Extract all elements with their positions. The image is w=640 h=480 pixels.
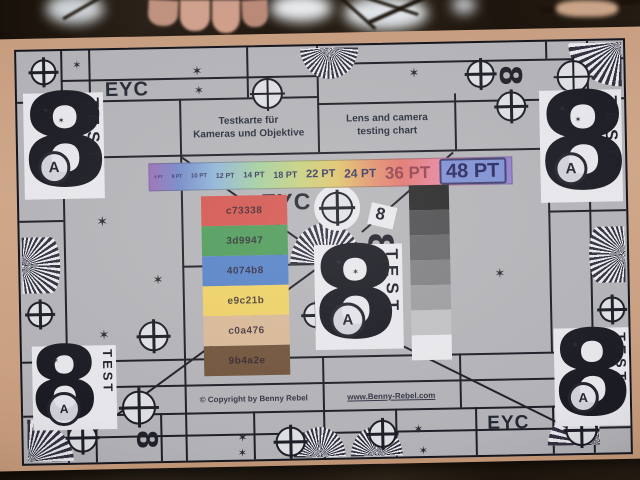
eyc-label-bottom: EYC: [487, 413, 529, 433]
color-patch-label: 4074b8: [227, 265, 264, 277]
color-patch-blue: 4074b8: [202, 255, 289, 287]
color-patch-brown: 9b4a2e: [204, 345, 291, 377]
finger: [241, 0, 268, 28]
pt-label: 6 PT: [154, 175, 163, 179]
test-vertical-label: TEST: [82, 98, 104, 194]
pt-label: 14 PT: [243, 171, 264, 179]
photo-of-test-chart: Testkarte für Kameras und Objektive Lens…: [0, 0, 640, 480]
font-size-gradient-bar: 6 PT 8 PT 10 PT 12 PT 14 PT 18 PT 22 PT …: [148, 156, 512, 191]
grayscale-step: [410, 235, 450, 261]
color-patch-red: c73338: [201, 195, 288, 227]
test-vertical-label: TEST: [613, 332, 631, 420]
circled-a-label: A: [554, 152, 588, 186]
copyright-cell: © Copyright by Benny Rebel: [185, 384, 323, 413]
star-marker-icon: ✶: [419, 446, 428, 457]
star-marker-icon: ✶: [42, 107, 49, 115]
star-marker-icon: ✶: [559, 105, 566, 113]
title-english-line2: testing chart: [357, 124, 417, 138]
star-marker-icon: ✶: [191, 64, 202, 77]
pt-label: 24 PT: [344, 167, 376, 180]
copyright-text: © Copyright by Benny Rebel: [200, 393, 308, 404]
crosshair-target-icon: [122, 390, 157, 425]
pt-label: 22 PT: [306, 168, 336, 180]
star-marker-icon: ✶: [413, 423, 423, 435]
color-patch-label: c73338: [226, 205, 263, 217]
grayscale-step: [409, 210, 449, 236]
thumb: [556, 0, 618, 17]
star-marker-icon: ✶: [237, 431, 247, 443]
test-block-bottom-right: 8 ✶ A TEST: [554, 327, 632, 426]
siemens-fan-icon: [22, 237, 61, 294]
finger: [212, 0, 240, 33]
grayscale-step: [412, 335, 452, 361]
grid-line: [545, 42, 547, 59]
color-patch-label: c0a476: [228, 325, 265, 337]
star-marker-icon: ✶: [408, 66, 419, 79]
star-marker-icon: ✶: [572, 341, 579, 349]
grayscale-step: [411, 285, 451, 311]
sky-patch: [452, 0, 476, 14]
crosshair-target-icon: [496, 91, 527, 122]
crosshair-target-icon: [138, 321, 169, 352]
grid-line: [19, 220, 63, 223]
pt-label: 18 PT: [273, 170, 297, 179]
star-marker-icon: ✶: [352, 268, 359, 276]
color-patch-label: 9b4a2e: [228, 355, 265, 367]
grid-line: [253, 411, 256, 459]
pt-label-48: 48 PT: [439, 157, 507, 184]
color-patch-tan: c0a476: [203, 315, 290, 347]
title-german-line1: Testkarte für: [218, 113, 278, 127]
eyc-label-top: EYC: [105, 79, 150, 100]
circled-a-label: A: [38, 151, 71, 184]
figure-eight: 8: [535, 75, 603, 210]
star-marker-icon: ✶: [238, 449, 247, 460]
siemens-fan-icon: [589, 226, 626, 283]
grayscale-step: [411, 310, 451, 336]
star-marker-icon: ✶: [194, 84, 204, 96]
finger: [147, 0, 178, 27]
crosshair-target-icon: [27, 301, 53, 327]
color-patch-label: e9c21b: [227, 295, 264, 307]
star-marker-icon: ✶: [52, 357, 59, 365]
figure-eight: 8: [19, 78, 85, 207]
star-marker-icon: ✶: [152, 273, 163, 286]
grayscale-step: [409, 185, 449, 211]
star-marker-icon: ✶: [575, 116, 582, 124]
star-marker-icon: ✶: [96, 214, 108, 228]
color-patch-yellow: e9c21b: [203, 285, 290, 317]
title-english: Lens and camera testing chart: [319, 96, 455, 152]
figure-eight: 8: [310, 229, 383, 357]
finger: [180, 0, 210, 31]
pt-label: 36 PT: [385, 163, 431, 181]
star-marker-icon: ✶: [58, 117, 65, 125]
test-block-center: 8 ✶ ✶ A TEST: [314, 243, 404, 350]
test-block-top-left: 8 ✶ ✶ A TEST: [23, 92, 105, 200]
crosshair-target-icon: [466, 60, 495, 89]
title-german-line2: Kameras und Objektive: [193, 126, 304, 141]
pt-label: 12 PT: [216, 172, 235, 179]
grid-line: [246, 47, 249, 97]
website-text: www.Benny-Rebel.com: [347, 390, 435, 401]
color-patch-green: 3d9947: [201, 225, 288, 257]
test-block-top-right: 8 ✶ ✶ A TEST: [539, 89, 623, 203]
grayscale-step: [410, 260, 450, 286]
test-vertical-label: TEST: [600, 95, 622, 196]
figure-eight: 8: [550, 314, 613, 433]
grid-line: [475, 407, 478, 455]
title-german: Testkarte für Kameras und Objektive: [181, 99, 316, 155]
test-block-bottom-left: 8 ✶ A TEST: [32, 345, 118, 431]
sideways-eight-icon: 8: [494, 65, 524, 86]
color-patch-label: 3d9947: [226, 235, 263, 247]
sideways-eight-icon: 8: [132, 429, 160, 449]
pt-label: 8 PT: [172, 174, 183, 179]
website-cell: www.Benny-Rebel.com: [323, 381, 460, 410]
star-marker-icon: ✶: [335, 258, 342, 266]
sky-patch: [270, 0, 332, 22]
test-vertical-label: TEST: [381, 249, 403, 344]
circled-a-label: A: [330, 302, 366, 338]
star-marker-icon: ✶: [98, 328, 109, 341]
lens-test-chart: Testkarte für Kameras und Objektive Lens…: [14, 38, 633, 466]
pt-label: 10 PT: [191, 173, 207, 179]
test-vertical-label: TEST: [100, 349, 116, 425]
star-marker-icon: ✶: [494, 267, 505, 280]
